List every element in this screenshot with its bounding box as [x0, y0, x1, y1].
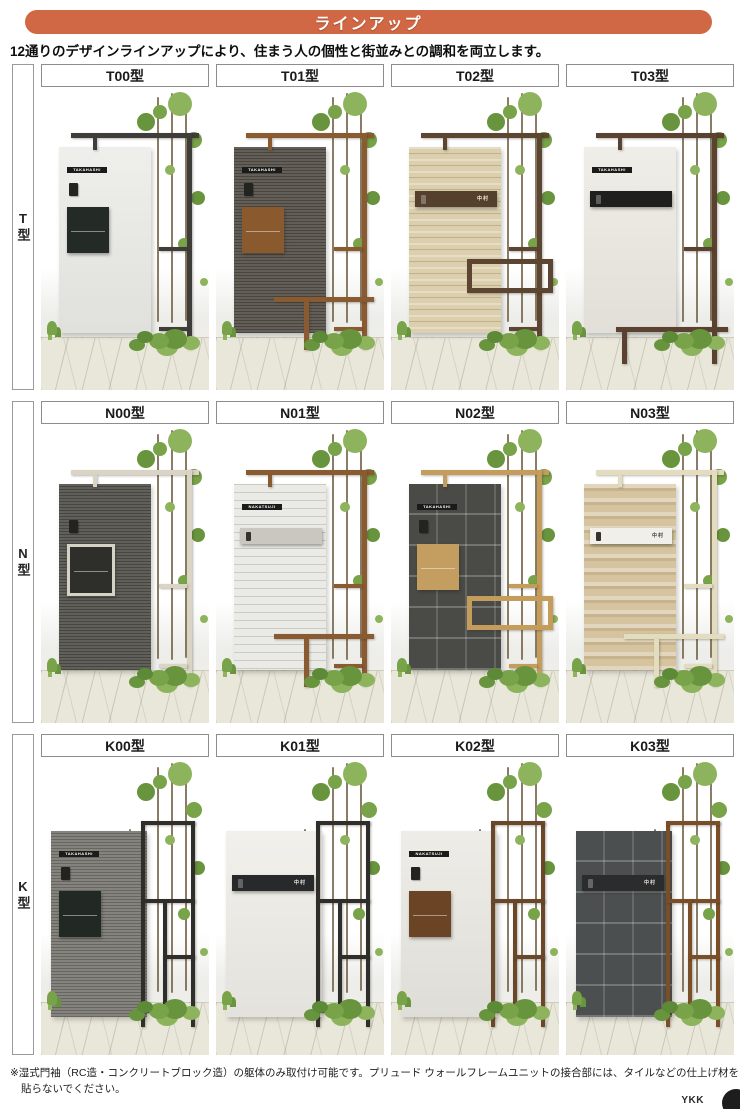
frame-box — [467, 259, 553, 293]
product-photo: TAKAHASHI — [391, 426, 559, 723]
grass-tuft — [47, 321, 57, 335]
model-label-text: K03型 — [630, 736, 670, 756]
lineup-row: K型K00型TAKAHASHIK01型中村K02型NAKATSUJIK03型中村 — [12, 734, 738, 1055]
bush — [662, 1001, 678, 1013]
frame-bar — [421, 470, 549, 475]
product-photo: TAKAHASHI — [41, 759, 209, 1055]
nameplate-text: 中村 — [652, 534, 664, 539]
monument-wall: TAKAHASHI — [51, 831, 147, 1017]
grass-tuft — [222, 321, 232, 335]
product-photo: NAKATSUJI — [391, 759, 559, 1055]
model-label: N00型 — [41, 401, 209, 424]
frame-bar — [712, 133, 717, 349]
frame-bar — [71, 133, 199, 138]
frame-box — [467, 596, 553, 630]
model-label: T03型 — [566, 64, 734, 87]
frame-bar — [443, 138, 447, 150]
monument-wall: 中村 — [576, 831, 672, 1017]
frame-bar — [596, 133, 724, 138]
bush — [137, 668, 153, 680]
frame-bar — [537, 470, 542, 686]
frame-bar — [712, 470, 717, 686]
tree-foliage — [678, 105, 692, 119]
lineup-cell: N01型NAKATSUJI — [216, 401, 384, 723]
frame-bar — [366, 821, 370, 1027]
lineup-cell: K02型NAKATSUJI — [391, 734, 559, 1055]
intercom-unit — [411, 867, 420, 880]
monument-wall: NAKATSUJI — [401, 831, 497, 1017]
product-photo: 中村 — [391, 89, 559, 390]
row-type-label-text: N型 — [14, 546, 33, 578]
paving-ground — [566, 337, 734, 390]
section-banner-label: ラインアップ — [314, 10, 422, 34]
lineup-cell: K00型TAKAHASHI — [41, 734, 209, 1055]
tree-foliage — [503, 105, 517, 119]
frame-bar — [618, 138, 622, 150]
bush — [312, 668, 328, 680]
tree-foliage — [153, 105, 167, 119]
monument-wall: NAKATSUJI — [234, 484, 326, 670]
tree-foliage — [153, 775, 167, 789]
tree-foliage — [328, 775, 342, 789]
bush — [487, 668, 503, 680]
lineup-cell: N00型 — [41, 401, 209, 723]
mailbox — [59, 891, 101, 937]
frame-bar — [187, 133, 192, 349]
frame-bar — [338, 955, 370, 959]
tree-trunk — [157, 97, 159, 322]
model-label-text: K02型 — [455, 736, 495, 756]
frame-bar — [509, 327, 537, 331]
intercom-unit — [421, 195, 426, 204]
grass-tuft — [397, 321, 407, 335]
frame-bar — [537, 133, 542, 349]
section-banner: ラインアップ — [25, 10, 712, 34]
tree-trunk — [346, 430, 348, 660]
frame-bar — [624, 634, 724, 639]
frame-bar — [334, 664, 362, 668]
tree-trunk — [696, 430, 698, 660]
bush — [137, 1001, 153, 1013]
tree-trunk — [332, 97, 334, 322]
frame-bar — [274, 297, 374, 302]
bush — [312, 331, 328, 343]
frame-bar — [316, 821, 370, 825]
frame-bar — [246, 470, 374, 475]
row-type-label-text: T型 — [14, 211, 33, 243]
nameplate: TAKAHASHI — [67, 167, 107, 173]
frame-bar — [159, 584, 187, 588]
nameplate-text: NAKATSUJI — [415, 852, 442, 856]
model-label-text: T01型 — [281, 66, 319, 86]
row-cells: T00型TAKAHASHIT01型TAKAHASHIT02型中村T03型TAKA… — [41, 64, 734, 390]
lineup-row: N型N00型N01型NAKATSUJIN02型TAKAHASHIN03型中村 — [12, 401, 738, 723]
model-label: T02型 — [391, 64, 559, 87]
bush — [487, 331, 503, 343]
row-type-label-text: K型 — [14, 879, 33, 911]
product-photo: TAKAHASHI — [41, 89, 209, 390]
frame-bar — [304, 302, 309, 350]
grass-tuft — [397, 991, 407, 1005]
frame-bar — [541, 821, 545, 1027]
grass-tuft — [397, 658, 407, 672]
grass-tuft — [47, 658, 57, 672]
intercom-unit — [588, 879, 593, 888]
tree-trunk — [682, 434, 684, 659]
frame-bar — [141, 899, 195, 903]
frame-bar — [712, 332, 717, 364]
bush — [662, 668, 678, 680]
frame-bar — [684, 664, 712, 668]
frame-bar — [93, 138, 97, 150]
brand-logo: YKK — [681, 1095, 704, 1106]
frame-bar — [716, 821, 720, 1027]
monument-wall: TAKAHASHI — [234, 147, 326, 333]
frame-bar — [334, 247, 362, 251]
intercom-unit — [238, 879, 243, 888]
frame-bar — [268, 138, 272, 150]
tree-foliage — [153, 442, 167, 456]
intercom-unit — [246, 532, 251, 541]
product-photo: 中村 — [566, 759, 734, 1055]
mailbox: 中村 — [232, 875, 314, 891]
tree-trunk — [682, 767, 684, 992]
paving-ground — [41, 337, 209, 390]
frame-bar — [509, 247, 537, 251]
product-photo — [41, 426, 209, 723]
frame-bar — [491, 899, 545, 903]
mailbox — [590, 191, 672, 207]
frame-bar — [654, 639, 659, 687]
intro-text: 12通りのデザインラインアップにより、住まう人の個性と街並みとの調和を両立します… — [10, 40, 549, 60]
tree-foliage — [328, 442, 342, 456]
model-label: N03型 — [566, 401, 734, 424]
intercom-unit — [419, 520, 428, 533]
paving-ground — [216, 670, 384, 723]
monument-wall — [59, 484, 151, 670]
product-photo: TAKAHASHI — [216, 89, 384, 390]
nameplate: NAKATSUJI — [409, 851, 449, 857]
intercom-unit — [244, 183, 253, 196]
mailbox — [417, 544, 459, 590]
lineup-cell: T03型TAKAHASHI — [566, 64, 734, 390]
frame-bar — [421, 133, 549, 138]
frame-bar — [509, 584, 537, 588]
monument-wall: TAKAHASHI — [584, 147, 676, 333]
bush — [137, 331, 153, 343]
product-photo: 中村 — [216, 759, 384, 1055]
tree-trunk — [682, 97, 684, 322]
nameplate: TAKAHASHI — [59, 851, 99, 857]
row-cells: N00型N01型NAKATSUJIN02型TAKAHASHIN03型中村 — [41, 401, 734, 723]
intercom-unit — [596, 195, 601, 204]
frame-bar — [688, 955, 720, 959]
intercom-unit — [61, 867, 70, 880]
grass-tuft — [572, 991, 582, 1005]
frame-bar — [274, 634, 374, 639]
intercom-unit — [596, 532, 601, 541]
frame-bar — [491, 821, 545, 825]
tree-trunk — [507, 767, 509, 992]
model-label: T01型 — [216, 64, 384, 87]
monument-wall: TAKAHASHI — [59, 147, 151, 333]
frame-bar — [509, 664, 537, 668]
footnote-text: ※湿式門袖（RC造・コンクリートブロック造）の躯体のみ取付け可能です。プリュード… — [10, 1066, 740, 1098]
product-photo: 中村 — [566, 426, 734, 723]
tree-trunk — [332, 767, 334, 992]
frame-bar — [141, 821, 195, 825]
tree-foliage — [678, 775, 692, 789]
frame-bar — [443, 475, 447, 487]
tree-trunk — [696, 93, 698, 323]
paving-ground — [41, 670, 209, 723]
row-type-label: K型 — [12, 734, 34, 1055]
monument-wall: TAKAHASHI — [409, 484, 501, 670]
tree-trunk — [157, 434, 159, 659]
lineup-grid: T型T00型TAKAHASHIT01型TAKAHASHIT02型中村T03型TA… — [12, 64, 738, 1066]
row-type-label: T型 — [12, 64, 34, 390]
frame-bar — [71, 470, 199, 475]
tree-trunk — [346, 93, 348, 323]
lineup-row: T型T00型TAKAHASHIT01型TAKAHASHIT02型中村T03型TA… — [12, 64, 738, 390]
frame-bar — [191, 821, 195, 1027]
frame-bar — [159, 664, 187, 668]
frame-bar — [163, 955, 195, 959]
mailbox — [67, 544, 115, 596]
mailbox-slot-line — [71, 231, 105, 232]
mailbox-slot-line — [421, 568, 455, 569]
frame-bar — [684, 247, 712, 251]
nameplate: NAKATSUJI — [242, 504, 282, 510]
catalog-page: ラインアップ 12通りのデザインラインアップにより、住まう人の個性と街並みとの調… — [0, 0, 740, 1109]
lineup-cell: T02型中村 — [391, 64, 559, 390]
model-label-text: T00型 — [106, 66, 144, 86]
nameplate: TAKAHASHI — [242, 167, 282, 173]
model-label: N02型 — [391, 401, 559, 424]
mailbox — [67, 207, 109, 253]
tree-trunk — [157, 767, 159, 992]
frame-bar — [334, 327, 362, 331]
model-label: N01型 — [216, 401, 384, 424]
monument-wall: 中村 — [584, 484, 676, 670]
intercom-unit — [69, 183, 78, 196]
tree-foliage — [503, 442, 517, 456]
frame-bar — [684, 584, 712, 588]
lineup-cell: T01型TAKAHASHI — [216, 64, 384, 390]
lineup-cell: K01型中村 — [216, 734, 384, 1055]
mailbox-slot-line — [74, 571, 108, 572]
grass-tuft — [222, 991, 232, 1005]
nameplate-text: 中村 — [477, 197, 489, 202]
frame-bar — [159, 247, 187, 251]
product-photo: NAKATSUJI — [216, 426, 384, 723]
model-label-text: N00型 — [105, 403, 145, 423]
paving-ground — [566, 670, 734, 723]
model-label-text: N01型 — [280, 403, 320, 423]
paving-ground — [391, 670, 559, 723]
lineup-cell: N02型TAKAHASHI — [391, 401, 559, 723]
frame-bar — [187, 470, 192, 686]
frame-bar — [159, 327, 187, 331]
mailbox-slot-line — [63, 915, 97, 916]
nameplate-text: 中村 — [644, 881, 656, 886]
nameplate-text: 中村 — [294, 881, 306, 886]
model-label: K02型 — [391, 734, 559, 757]
frame-bar — [316, 821, 320, 1027]
model-label: K03型 — [566, 734, 734, 757]
mailbox — [240, 528, 322, 544]
frame-bar — [141, 821, 145, 1027]
frame-bar — [268, 475, 272, 487]
nameplate: TAKAHASHI — [592, 167, 632, 173]
frame-bar — [491, 821, 495, 1027]
nameplate-text: TAKAHASHI — [423, 505, 451, 509]
bush — [312, 1001, 328, 1013]
nameplate-text: NAKATSUJI — [248, 505, 275, 509]
grass-tuft — [222, 658, 232, 672]
paving-ground — [216, 337, 384, 390]
frame-bar — [618, 475, 622, 487]
grass-tuft — [47, 991, 57, 1005]
tree-trunk — [171, 93, 173, 323]
nameplate-text: TAKAHASHI — [73, 168, 101, 172]
monument-wall: 中村 — [409, 147, 501, 333]
frame-bar — [93, 475, 97, 487]
lineup-cell: T00型TAKAHASHI — [41, 64, 209, 390]
grass-tuft — [572, 321, 582, 335]
tree-trunk — [171, 430, 173, 660]
mailbox-slot-line — [246, 231, 280, 232]
frame-bar — [316, 899, 370, 903]
tree-trunk — [332, 434, 334, 659]
model-label: K00型 — [41, 734, 209, 757]
model-label-text: N02型 — [455, 403, 495, 423]
mailbox: 中村 — [590, 528, 672, 544]
frame-bar — [246, 133, 374, 138]
model-label: K01型 — [216, 734, 384, 757]
lineup-cell: N03型中村 — [566, 401, 734, 723]
mailbox — [242, 207, 284, 253]
frame-bar — [622, 332, 627, 364]
frame-bar — [513, 955, 545, 959]
monument-wall: 中村 — [226, 831, 322, 1017]
product-photo: TAKAHASHI — [566, 89, 734, 390]
nameplate-text: TAKAHASHI — [65, 852, 93, 856]
row-cells: K00型TAKAHASHIK01型中村K02型NAKATSUJIK03型中村 — [41, 734, 734, 1055]
frame-bar — [334, 584, 362, 588]
tree-foliage — [503, 775, 517, 789]
grass-tuft — [572, 658, 582, 672]
bush — [662, 331, 678, 343]
nameplate: TAKAHASHI — [417, 504, 457, 510]
frame-bar — [666, 899, 720, 903]
frame-bar — [596, 470, 724, 475]
tree-foliage — [328, 105, 342, 119]
model-label-text: T03型 — [631, 66, 669, 86]
model-label-text: K01型 — [280, 736, 320, 756]
lineup-cell: K03型中村 — [566, 734, 734, 1055]
frame-bar — [666, 821, 720, 825]
model-label-text: N03型 — [630, 403, 670, 423]
frame-bar — [362, 470, 367, 686]
nameplate-text: TAKAHASHI — [248, 168, 276, 172]
frame-bar — [304, 639, 309, 687]
mailbox: 中村 — [415, 191, 497, 207]
nameplate-text: TAKAHASHI — [598, 168, 626, 172]
model-label-text: K00型 — [105, 736, 145, 756]
frame-bar — [362, 133, 367, 349]
paving-ground — [391, 337, 559, 390]
mailbox — [409, 891, 451, 937]
model-label-text: T02型 — [456, 66, 494, 86]
mailbox: 中村 — [582, 875, 664, 891]
tree-foliage — [678, 442, 692, 456]
frame-bar — [666, 821, 670, 1027]
row-type-label: N型 — [12, 401, 34, 723]
mailbox-slot-line — [413, 915, 447, 916]
bush — [487, 1001, 503, 1013]
model-label: T00型 — [41, 64, 209, 87]
intercom-unit — [69, 520, 78, 533]
